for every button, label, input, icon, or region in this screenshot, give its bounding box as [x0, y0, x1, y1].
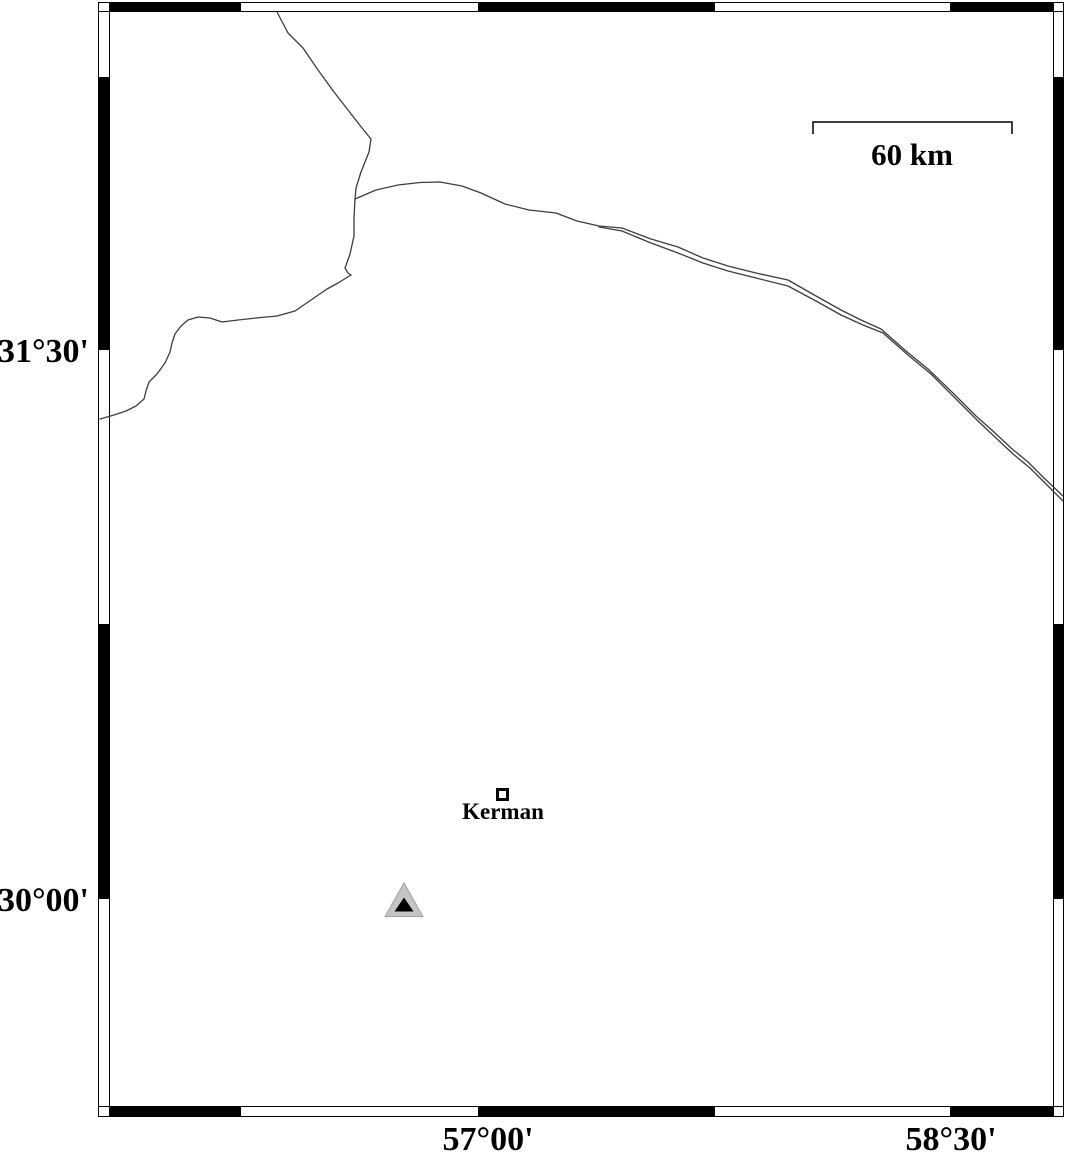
frame-segment-left: [99, 624, 109, 899]
frame-segment-top: [950, 3, 1054, 12]
lon-label-left: 57°00': [442, 1121, 533, 1156]
scale-bar-label: 60 km: [871, 137, 953, 172]
frame-segment-right: [1054, 624, 1064, 899]
frame-segment-left: [99, 77, 109, 350]
frame-segment-bottom: [950, 1107, 1054, 1116]
map-figure: 60 km Kerman 31°30' 30°00' 57°00' 58°30': [0, 0, 1066, 1156]
frame-segment-top: [110, 3, 242, 12]
lat-label-upper: 31°30': [0, 333, 89, 370]
frame-segment-right: [1054, 77, 1064, 350]
city-square-icon: [498, 790, 508, 800]
lon-label-right: 58°30': [905, 1121, 996, 1156]
lat-label-lower: 30°00': [0, 882, 89, 919]
map-background: [0, 0, 1066, 1156]
city-label: Kerman: [462, 799, 544, 824]
map-canvas: 60 km Kerman 31°30' 30°00' 57°00' 58°30': [0, 0, 1066, 1156]
frame-segment-bottom: [478, 1107, 715, 1116]
frame-segment-top: [478, 3, 715, 12]
frame-segment-bottom: [110, 1107, 242, 1116]
